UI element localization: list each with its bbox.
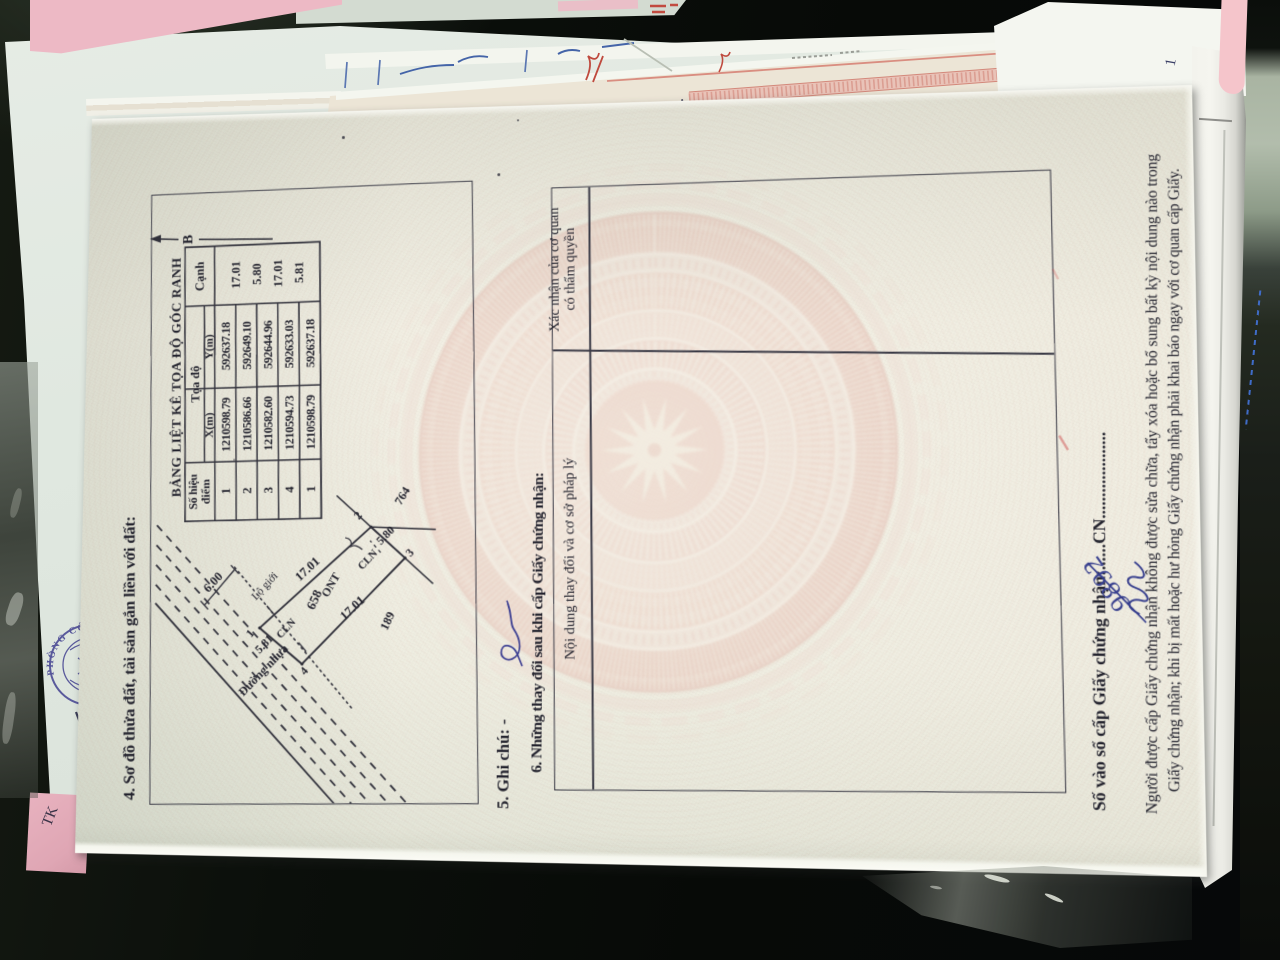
svg-text:B: B: [181, 234, 197, 244]
svg-text:6.00: 6.00: [200, 569, 225, 595]
svg-text:Lộ giới: Lộ giới: [249, 570, 280, 603]
svg-text:CLN: CLN: [275, 616, 299, 641]
svg-text:764: 764: [391, 484, 413, 508]
svg-text:17.01: 17.01: [292, 554, 322, 584]
svg-text:189: 189: [377, 609, 398, 632]
svg-text:ONT: ONT: [320, 571, 343, 600]
svg-text:17.01: 17.01: [337, 593, 367, 624]
svg-text:CLN: CLN: [356, 548, 380, 573]
svg-text:4: 4: [298, 665, 311, 678]
